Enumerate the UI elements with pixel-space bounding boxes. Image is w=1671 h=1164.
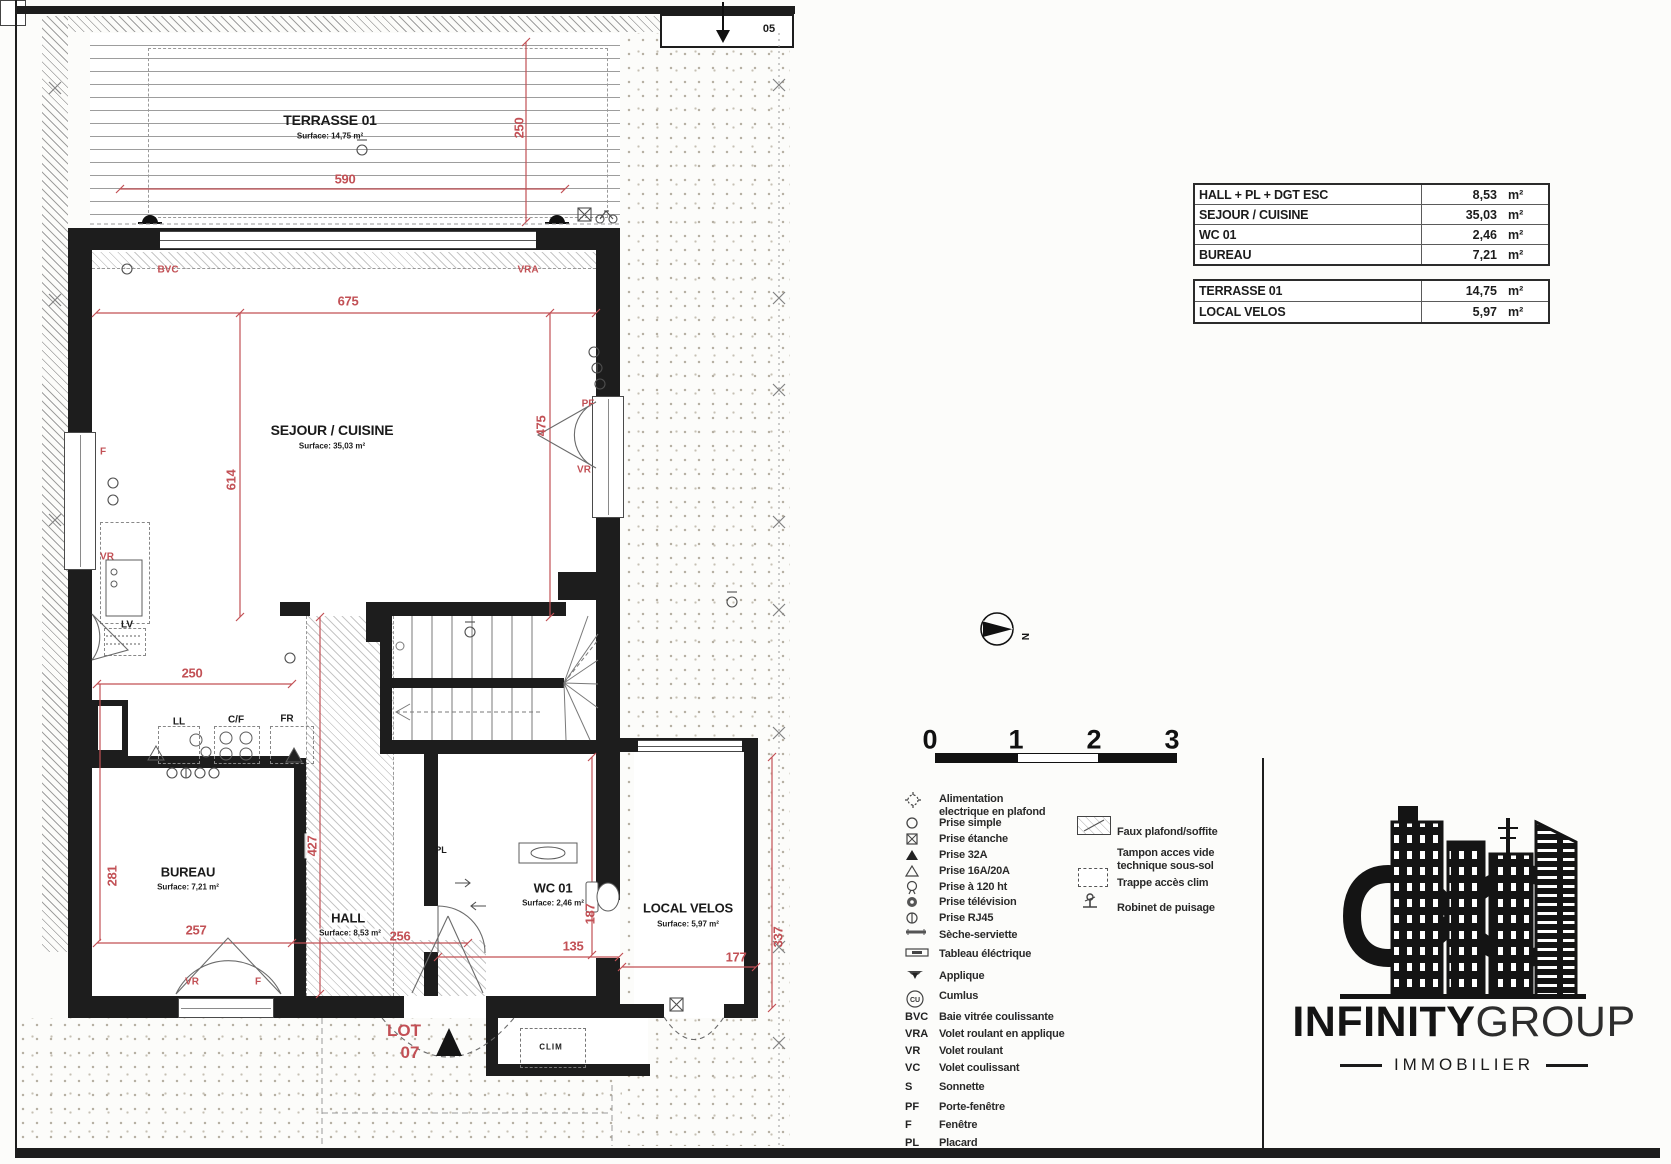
legend-item: Tableau éléctrique <box>905 947 1031 961</box>
row-label: TERRASSE 01 <box>1195 281 1422 301</box>
abbrev-code: F <box>905 1119 939 1131</box>
dim-675: 675 <box>338 294 359 309</box>
abbrev-code: PL <box>905 1137 939 1149</box>
abbrev-code: BVC <box>905 1011 939 1023</box>
abbrev-label: Baie vitrée coulissante <box>939 1011 1054 1023</box>
row-unit: m² <box>1497 302 1548 322</box>
dim-281: 281 <box>105 866 120 887</box>
room-terrasse-name: TERRASSE 01 <box>283 112 377 128</box>
dim-590: 590 <box>335 172 356 187</box>
room-wc-surface: Surface: 2,46 m² <box>522 899 584 908</box>
terrace-posts <box>138 215 569 223</box>
label-bvc: BVC <box>157 265 178 276</box>
legend-label: Faux plafond/soffite <box>1117 826 1218 838</box>
scale-tick-0: 0 <box>922 725 937 756</box>
row-value: 2,46 <box>1422 225 1497 244</box>
row-value: 5,97 <box>1422 302 1497 322</box>
label-vra: VRA <box>517 265 538 276</box>
legend-right-item: Faux plafond/soffite <box>1117 825 1218 839</box>
legend-label: technique sous-sol <box>1117 860 1214 872</box>
abbrev-label: Fenêtre <box>939 1119 977 1131</box>
table-row: TERRASSE 01 14,75 m² <box>1195 281 1548 301</box>
room-sejour-name: SEJOUR / CUISINE <box>271 422 394 438</box>
legend-label: Prise 16A/20A <box>939 865 1010 877</box>
row-unit: m² <box>1497 225 1548 244</box>
legend-right-item: Robinet de puisage <box>1117 901 1215 915</box>
legend-item: Sèche-serviette <box>905 928 1017 942</box>
legend-item: Prise 32A <box>905 848 987 862</box>
legend-item: Prise simple <box>905 816 1001 830</box>
legend-label: Prise télévision <box>939 896 1017 908</box>
row-label: HALL + PL + DGT ESC <box>1195 185 1422 204</box>
legend-abbrev: PF Porte-fenêtre <box>905 1100 1005 1114</box>
scale-segment <box>1018 754 1098 762</box>
dim-135: 135 <box>563 939 584 954</box>
label-vr-left: VR <box>100 552 114 563</box>
electrical-symbols <box>108 140 737 1011</box>
scale-bar <box>935 753 1177 763</box>
legend-label: Prise à 120 ht <box>939 881 1007 893</box>
legend-abbrev: VR Volet roulant <box>905 1044 1003 1058</box>
legend-right-item: Tampon acces vide <box>1117 846 1214 860</box>
legend-abbrev: S Sonnette <box>905 1080 984 1094</box>
label-vr-bottom: VR <box>185 977 199 988</box>
dim-427: 427 <box>305 834 320 859</box>
fixtures <box>106 560 619 912</box>
room-wc-name: WC 01 <box>534 881 573 896</box>
logo-wordmark: INFINITYGROUP <box>1268 998 1660 1047</box>
legend-item: Prise télévision <box>905 895 1017 909</box>
row-unit: m² <box>1497 245 1548 264</box>
label-lot-number: 07 <box>401 1043 420 1063</box>
room-bureau-surface: Surface: 7,21 m² <box>157 883 219 892</box>
label-fr: FR <box>280 714 293 725</box>
abbrev-label: Volet coulissant <box>939 1062 1019 1074</box>
legend-right-item-line2: technique sous-sol <box>1117 859 1214 873</box>
scale-tick-1: 1 <box>1008 725 1023 756</box>
room-sejour-surface: Surface: 35,03 m² <box>299 442 365 451</box>
interior-areas-table: HALL + PL + DGT ESC 8,53 m² SEJOUR / CUI… <box>1193 183 1550 266</box>
logo-word-bold: INFINITY <box>1292 998 1475 1046</box>
dim-177: 177 <box>726 950 747 965</box>
logo-divider-line <box>1262 758 1264 1148</box>
plan-linework: N <box>0 0 1671 1164</box>
infinity-logo-mark <box>1340 806 1586 999</box>
row-label: WC 01 <box>1195 225 1422 244</box>
room-terrasse-surface: Surface: 14,75 m² <box>297 132 363 141</box>
legend-abbrev: VRA Volet roulant en applique <box>905 1027 1065 1041</box>
legend-label: Prise 32A <box>939 849 987 861</box>
room-hall-surface: Surface: 8,53 m² <box>317 929 383 938</box>
label-pl: PL <box>435 845 447 855</box>
legend-label: Tampon acces vide <box>1117 847 1214 859</box>
dim-614: 614 <box>224 470 239 491</box>
floorplan-sheet: N 05 TERRASSE 01 Surface: 14,75 <box>0 0 1671 1164</box>
false-ceiling-icon <box>1077 816 1111 835</box>
clim-hatch-icon <box>1078 868 1108 887</box>
tagline-dash-right <box>1546 1064 1588 1067</box>
dim-187: 187 <box>583 904 598 925</box>
legend-item: Applique <box>905 969 984 983</box>
legend-item: CU Cumlus <box>905 989 978 1003</box>
lot-entry-triangle <box>436 1028 462 1056</box>
legend-abbrev: VC Volet coulissant <box>905 1061 1019 1075</box>
legend-abbrev: BVC Baie vitrée coulissante <box>905 1010 1054 1024</box>
legend-abbrev: PL Placard <box>905 1136 977 1150</box>
label-cf: C/F <box>228 715 244 726</box>
dim-337: 337 <box>771 927 786 948</box>
row-label: BUREAU <box>1195 245 1422 264</box>
logo-tagline-row: IMMOBILIER <box>1268 1055 1660 1075</box>
label-clim: CLIM <box>539 1043 563 1052</box>
legend-item: Prise 16A/20A <box>905 864 1010 878</box>
logo-word-light: GROUP <box>1475 998 1635 1046</box>
legend-item: Alimentation <box>905 792 1003 806</box>
marker-05-arrow <box>716 2 730 43</box>
abbrev-code: PF <box>905 1101 939 1113</box>
svg-text:CU: CU <box>910 997 920 1004</box>
row-unit: m² <box>1497 281 1548 301</box>
staircase <box>396 616 598 740</box>
abbrev-label: Volet roulant <box>939 1045 1003 1057</box>
tagline-dash-left <box>1340 1064 1382 1067</box>
table-row: HALL + PL + DGT ESC 8,53 m² <box>1195 185 1548 204</box>
row-value: 35,03 <box>1422 205 1497 224</box>
legend-label: Cumlus <box>939 990 978 1002</box>
door-swings <box>92 402 724 1057</box>
room-velos-surface: Surface: 5,97 m² <box>657 920 719 929</box>
label-vr-right: VR <box>577 465 591 476</box>
abbrev-label: Placard <box>939 1137 977 1149</box>
abbrev-label: Sonnette <box>939 1081 984 1093</box>
label-lot: LOT <box>387 1021 421 1041</box>
dim-475: 475 <box>534 416 549 437</box>
abbrev-code: VR <box>905 1045 939 1057</box>
legend-item: Prise RJ45 <box>905 911 993 925</box>
legend-abbrev: F Fenêtre <box>905 1118 977 1132</box>
abbrev-code: VRA <box>905 1028 939 1040</box>
table-row: WC 01 2,46 m² <box>1195 224 1548 244</box>
legend-label: Alimentation <box>939 793 1003 805</box>
row-value: 14,75 <box>1422 281 1497 301</box>
legend-right-item: Trappe accès clim <box>1117 876 1208 890</box>
legend-label: Prise simple <box>939 817 1001 829</box>
label-pf: PF <box>582 399 595 410</box>
scale-tick-2: 2 <box>1086 725 1101 756</box>
legend-label: Trappe accès clim <box>1117 877 1208 889</box>
scale-segment <box>1098 754 1176 762</box>
abbrev-label: Volet roulant en applique <box>939 1028 1065 1040</box>
dim-256: 256 <box>390 929 411 944</box>
row-label: LOCAL VELOS <box>1195 302 1422 322</box>
room-hall-name: HALL <box>329 911 367 926</box>
row-label: SEJOUR / CUISINE <box>1195 205 1422 224</box>
row-value: 8,53 <box>1422 185 1497 204</box>
row-unit: m² <box>1497 205 1548 224</box>
table-row: BUREAU 7,21 m² <box>1195 244 1548 264</box>
label-f-left: F <box>100 447 106 458</box>
dim-250-terrace: 250 <box>512 118 527 139</box>
scale-tick-3: 3 <box>1164 725 1179 756</box>
marker-05-label: 05 <box>763 23 775 35</box>
label-f-bottom: F <box>255 977 261 988</box>
north-label: N <box>1019 633 1030 640</box>
table-row: SEJOUR / CUISINE 35,03 m² <box>1195 204 1548 224</box>
label-ll: LL <box>173 717 185 728</box>
scale-segment <box>936 754 1018 762</box>
legend-label: Prise RJ45 <box>939 912 993 924</box>
logo-tagline: IMMOBILIER <box>1394 1055 1534 1075</box>
legend-label: Sèche-serviette <box>939 929 1017 941</box>
abbrev-code: VC <box>905 1062 939 1074</box>
legend-label: Applique <box>939 970 984 982</box>
dim-257: 257 <box>186 923 207 938</box>
north-compass: N <box>981 613 1030 645</box>
label-lv: LV <box>121 620 133 631</box>
room-bureau-name: BUREAU <box>161 865 215 880</box>
dim-250-kitchen: 250 <box>182 666 203 681</box>
row-value: 7,21 <box>1422 245 1497 264</box>
abbrev-label: Porte-fenêtre <box>939 1101 1005 1113</box>
abbrev-code: S <box>905 1081 939 1093</box>
exterior-areas-table: TERRASSE 01 14,75 m² LOCAL VELOS 5,97 m² <box>1193 279 1550 324</box>
legend-label: Prise étanche <box>939 833 1008 845</box>
room-velos-name: LOCAL VELOS <box>643 901 733 916</box>
table-row: LOCAL VELOS 5,97 m² <box>1195 301 1548 322</box>
legend-label: Tableau éléctrique <box>939 948 1031 960</box>
legend-item: Prise à 120 ht <box>905 880 1007 894</box>
legend-label: Robinet de puisage <box>1117 902 1215 914</box>
legend-item: Prise étanche <box>905 832 1008 846</box>
row-unit: m² <box>1497 185 1548 204</box>
